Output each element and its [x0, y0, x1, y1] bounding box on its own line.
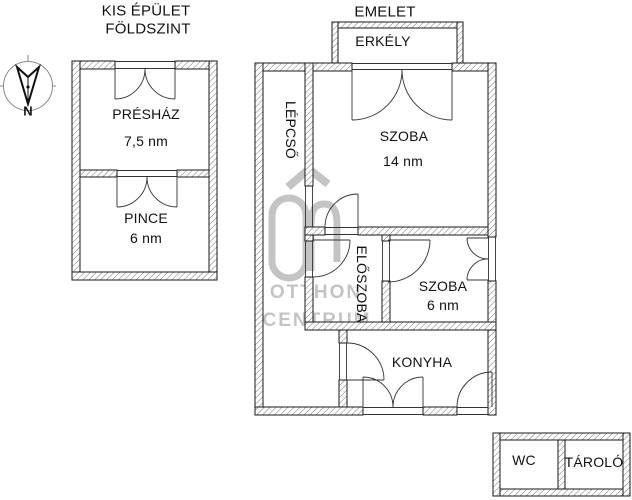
room-label-szoba6: SZOBA: [419, 278, 467, 294]
room-area-preshaz: 7,5 nm: [124, 133, 168, 149]
title-small-building-line1: KIS ÉPÜLET: [102, 3, 191, 20]
room-label-lepcso: LÉPCSŐ: [283, 101, 299, 159]
compass-north-label: N: [23, 104, 33, 119]
room-area-szoba6: 6 nm: [427, 297, 459, 313]
room-area-pince: 6 nm: [130, 230, 162, 246]
room-label-pince: PINCE: [124, 210, 168, 226]
room-label-tarolo: TÁROLÓ: [565, 454, 624, 470]
title-small-building-line2: FÖLDSZINT: [105, 21, 190, 38]
labels-layer: KIS ÉPÜLET FÖLDSZINT EMELET PRÉSHÁZ 7,5 …: [0, 0, 632, 500]
room-label-wc: WC: [512, 452, 536, 468]
room-label-erkely: ERKÉLY: [355, 33, 410, 49]
room-label-preshaz: PRÉSHÁZ: [112, 106, 180, 122]
room-label-szoba14: SZOBA: [380, 128, 428, 144]
room-label-konyha: KONYHA: [392, 354, 452, 370]
title-main-building: EMELET: [354, 4, 415, 21]
room-label-eloszoba: ELŐSZOBA: [354, 245, 370, 322]
floorplan-page: OTTHON CENTRUM: [0, 0, 632, 500]
room-area-szoba14: 14 nm: [383, 153, 423, 169]
